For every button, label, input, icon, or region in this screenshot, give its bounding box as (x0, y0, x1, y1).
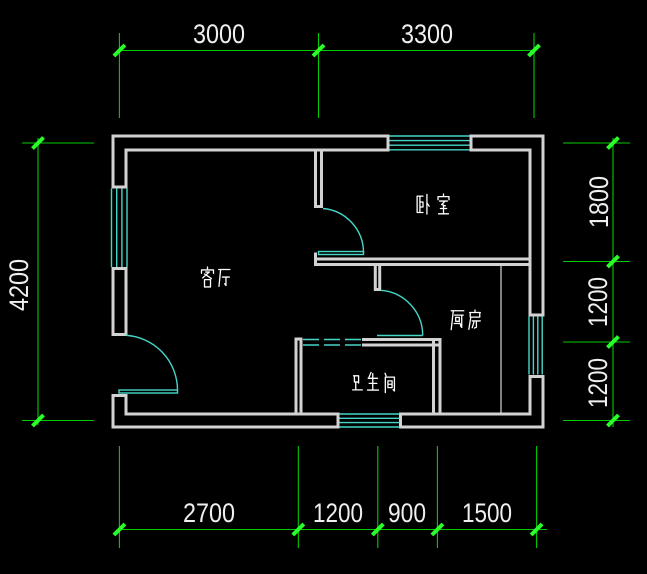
svg-text:3300: 3300 (401, 19, 453, 49)
svg-text:1200: 1200 (583, 358, 613, 408)
svg-text:3000: 3000 (193, 19, 245, 49)
svg-text:1200: 1200 (313, 498, 363, 528)
svg-text:1200: 1200 (583, 277, 613, 327)
svg-text:1500: 1500 (462, 498, 512, 528)
svg-text:2700: 2700 (183, 498, 235, 528)
svg-text:1800: 1800 (584, 176, 614, 228)
svg-text:4200: 4200 (4, 259, 34, 311)
svg-text:900: 900 (388, 498, 426, 528)
